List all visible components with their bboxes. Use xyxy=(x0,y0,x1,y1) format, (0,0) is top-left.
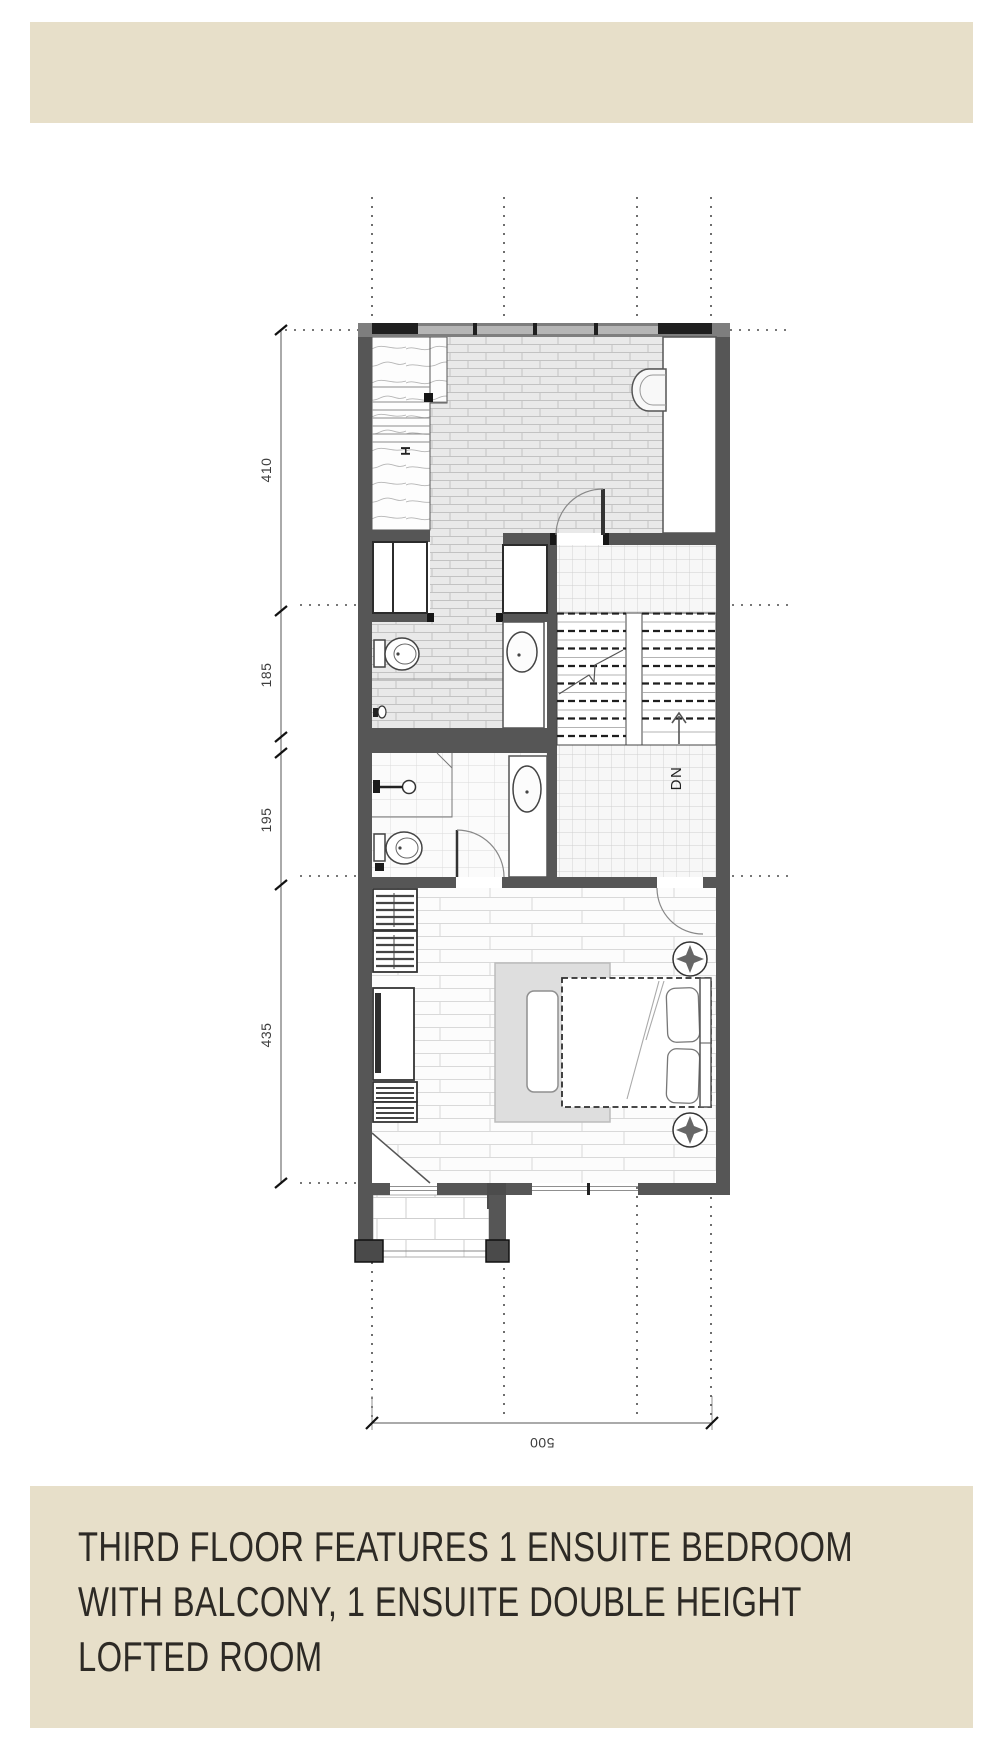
dim-195: 195 xyxy=(258,808,274,833)
dim-435: 435 xyxy=(258,1023,274,1048)
dim-500: 500 xyxy=(530,1435,555,1451)
column-marker: H xyxy=(398,446,413,455)
toilet-tank xyxy=(374,834,385,861)
loft-floor xyxy=(447,337,663,403)
right-wall xyxy=(716,323,730,1195)
caption: THIRD FLOOR FEATURES 1 ENSUITE BEDROOM W… xyxy=(78,1519,1002,1684)
dim-185: 185 xyxy=(258,663,274,688)
sink xyxy=(513,766,541,812)
newel-post xyxy=(424,393,433,402)
window-mullion xyxy=(473,323,477,335)
bathroom1-floor xyxy=(372,622,503,728)
balcony-wall-right xyxy=(489,1195,506,1243)
window-mullion xyxy=(533,323,537,335)
bench xyxy=(527,991,558,1092)
pillow xyxy=(666,1048,700,1103)
caption-line-2: WITH BALCONY, 1 ENSUITE DOUBLE HEIGHT xyxy=(78,1574,853,1629)
pillow xyxy=(666,987,700,1042)
shower-head xyxy=(403,781,416,794)
balcony-wall-left xyxy=(358,1195,373,1243)
shower-valve xyxy=(373,780,380,793)
wall-fixture xyxy=(378,706,386,718)
ceiling-light xyxy=(673,1113,707,1147)
stair-stringer xyxy=(626,613,642,745)
lower-landing-floor xyxy=(557,745,716,877)
toilet-tank xyxy=(374,640,385,667)
corridor-floor xyxy=(430,533,503,622)
page: { "header": { "band_color": "#e7dfc9" },… xyxy=(0,0,1002,1745)
caption-line-3: LOFTED ROOM xyxy=(78,1629,853,1684)
down-label: DN xyxy=(668,766,685,791)
top-window-glazing xyxy=(418,326,658,334)
sink xyxy=(507,632,537,672)
dimension-left: 410 185 195 435 xyxy=(258,325,287,1188)
toilet xyxy=(385,638,419,670)
balcony-floor xyxy=(373,1195,489,1257)
toilet xyxy=(386,832,422,864)
wardrobe-units xyxy=(373,889,417,1122)
upper-landing-floor xyxy=(557,545,716,613)
window-mullion xyxy=(594,323,598,335)
caption-line-1: THIRD FLOOR FEATURES 1 ENSUITE BEDROOM xyxy=(78,1519,853,1574)
balcony-door xyxy=(390,1187,437,1191)
dim-410: 410 xyxy=(258,458,274,483)
floor-plan: H xyxy=(0,0,1002,1745)
left-wall xyxy=(358,323,372,1195)
ceiling-light xyxy=(673,942,707,976)
dimension-bottom: 500 xyxy=(366,1396,718,1451)
